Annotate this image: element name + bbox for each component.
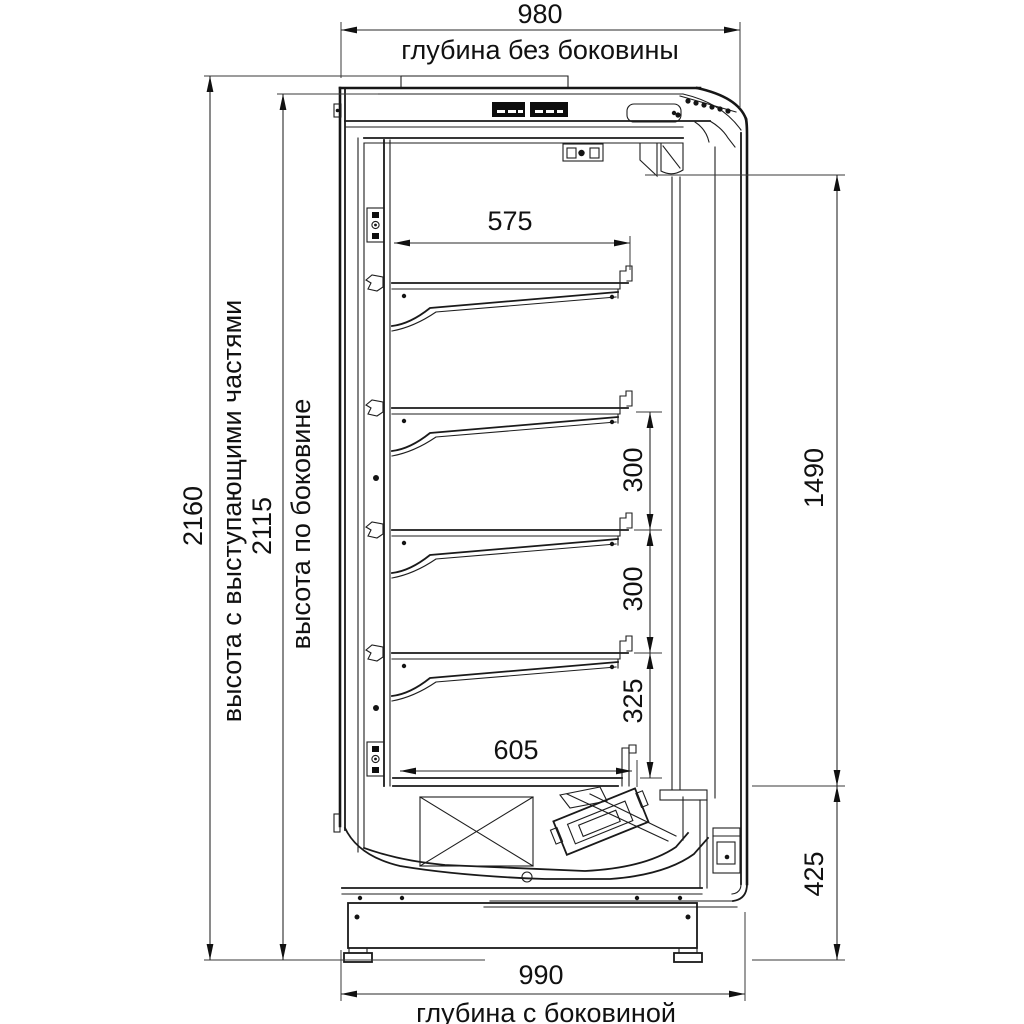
technical-drawing: 980 глубина без боковины 2160 высота с в… — [0, 0, 1024, 1024]
wall-bracket-upper — [367, 208, 384, 242]
shelf-clip — [366, 522, 383, 538]
base — [342, 888, 702, 962]
technical-drawing-canvas: 980 глубина без боковины 2160 высота с в… — [0, 0, 1024, 1024]
shelf-1 — [366, 266, 632, 331]
dim-shelf-top-width-value: 575 — [487, 206, 532, 236]
dimension-shelf-top-width: 575 — [394, 206, 630, 270]
shelves — [366, 266, 632, 701]
dimension-shelf-bottom-width: 605 — [400, 735, 637, 787]
shelf-3 — [366, 513, 632, 578]
dim-top-label: глубина без боковины — [401, 35, 679, 65]
dimension-height-overall: 2160 высота с выступающими частями — [178, 76, 485, 960]
foot-right — [674, 948, 702, 962]
vent-grilles — [492, 102, 568, 117]
drain — [522, 872, 532, 882]
shelf-clip — [366, 400, 383, 416]
dim-shelf-bottom-width-value: 605 — [493, 735, 538, 765]
dim-height-side-value: 2115 — [247, 497, 277, 555]
bottom-section — [345, 745, 740, 888]
dim-gap-b-value: 300 — [618, 566, 648, 611]
dimension-base-height: 425 — [752, 786, 845, 960]
dimension-shelf-gaps: 300 300 325 — [618, 412, 662, 778]
dim-inner-height-value: 1490 — [799, 448, 829, 508]
dim-top-value: 980 — [517, 0, 562, 29]
front-side-panel — [484, 119, 747, 907]
ceiling-clip — [563, 144, 603, 161]
dim-bottom-label: глубина с боковиной — [416, 998, 676, 1024]
dim-gap-c-value: 325 — [618, 678, 648, 723]
dim-base-height-value: 425 — [799, 851, 829, 896]
shelf-2 — [366, 391, 632, 456]
wall-bracket-lower — [367, 742, 384, 776]
shelf-clip — [366, 645, 383, 661]
dim-gap-a-value: 300 — [618, 447, 648, 492]
connector-box — [713, 828, 740, 873]
fan-unit — [548, 786, 654, 857]
shelf-4 — [366, 636, 632, 701]
dimension-inner-height: 1490 — [645, 175, 845, 786]
dimension-depth-without-side: 980 глубина без боковины — [341, 0, 740, 108]
duct-box — [420, 797, 533, 866]
plinth — [348, 903, 697, 948]
dim-height-overall-value: 2160 — [178, 486, 208, 546]
shelf-clip — [366, 275, 383, 291]
dim-height-side-label: высота по боковине — [286, 399, 316, 650]
dimension-depth-with-side: 990 глубина с боковиной — [341, 912, 745, 1024]
dim-bottom-value: 990 — [518, 960, 563, 990]
dim-height-overall-label: высота с выступающими частями — [217, 300, 247, 723]
air-outlet — [640, 143, 657, 176]
led-dots — [685, 98, 730, 113]
canopy — [340, 76, 746, 147]
back-wall — [334, 88, 390, 852]
inner-ceiling — [364, 138, 683, 176]
